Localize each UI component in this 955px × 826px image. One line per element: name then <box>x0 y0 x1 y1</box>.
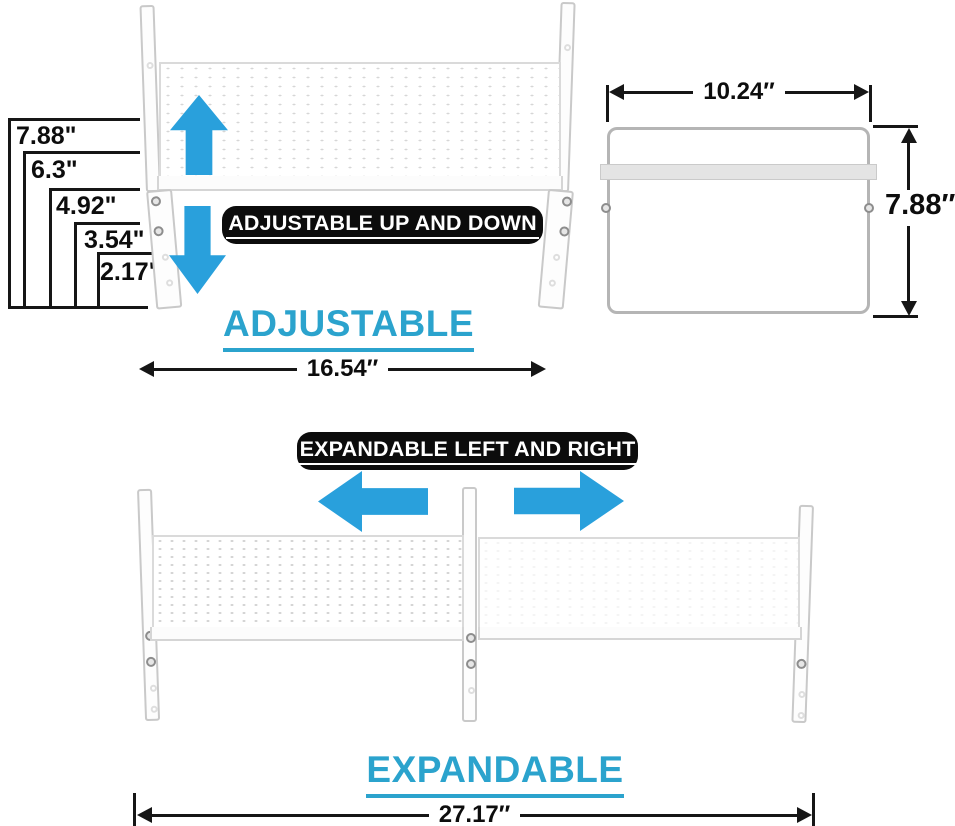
screw-icon <box>601 203 611 213</box>
screw-icon <box>153 226 164 237</box>
width-dimension-label: 16.54″ <box>297 355 389 383</box>
hole-dot <box>468 687 475 694</box>
hole-dot <box>151 706 158 713</box>
hole-dot <box>150 685 157 692</box>
hole-dot <box>162 253 170 261</box>
expandable-heading: EXPANDABLE <box>350 749 640 798</box>
dimension-arrowhead-left <box>137 807 152 823</box>
expand-post-center <box>462 487 477 722</box>
height-label-3: 4.92" <box>56 192 117 221</box>
measure-line <box>8 118 140 121</box>
shelf-top-panel <box>159 62 561 176</box>
expand-panel-left <box>152 535 464 627</box>
measure-line <box>49 188 140 191</box>
dimension-line <box>907 226 910 304</box>
measure-line <box>49 189 52 308</box>
dimension-line <box>907 141 910 190</box>
height-label-2: 6.3" <box>31 156 78 185</box>
dimension-line <box>624 91 693 94</box>
side-height-label: 7.88″ <box>885 189 955 222</box>
screw-icon <box>796 659 806 669</box>
expand-front-edge-right <box>478 627 802 640</box>
left-arrow-icon <box>318 471 428 532</box>
product-dimension-infographic: 7.88" 6.3" 4.92" 3.54" 2.17" ADJU <box>0 0 955 826</box>
screw-icon <box>466 633 476 643</box>
measure-line <box>8 306 148 309</box>
dimension-arrowhead-down <box>901 301 917 316</box>
screw-icon <box>151 196 162 207</box>
dimension-line <box>154 368 297 371</box>
width-dimension-16-54: 16.54″ <box>139 356 546 382</box>
dimension-arrowhead-left <box>609 84 624 100</box>
shelf-leg-left <box>146 189 182 310</box>
dimension-arrowhead-right <box>854 84 869 100</box>
dimension-line <box>152 814 429 817</box>
depth-dimension-10-24: 10.24″ <box>609 79 869 105</box>
shelf-leg-right <box>538 189 574 310</box>
expand-front-edge-left <box>150 627 464 641</box>
measure-line <box>23 152 26 308</box>
dimension-tick <box>133 793 136 826</box>
hole-dot <box>166 279 174 287</box>
dimension-tick <box>812 793 815 826</box>
expandable-callout-pill: EXPANDABLE LEFT AND RIGHT <box>297 432 638 470</box>
dimension-arrowhead-left <box>139 361 154 377</box>
height-label-4: 3.54" <box>84 226 145 255</box>
hole-dot <box>553 254 561 262</box>
screw-icon <box>559 226 570 237</box>
measure-line <box>8 119 11 308</box>
screw-icon <box>146 657 156 667</box>
shelf-front-edge <box>157 176 563 191</box>
dimension-line <box>785 91 854 94</box>
side-view-shelf-bar <box>600 164 877 180</box>
adjustable-callout-label: ADJUSTABLE UP AND DOWN <box>226 211 539 239</box>
hole-dot <box>549 279 557 287</box>
expand-panel-right <box>478 537 800 627</box>
screw-icon <box>864 203 874 213</box>
width-dimension-27-17: 27.17″ <box>137 802 812 826</box>
measure-line <box>74 223 77 308</box>
dimension-line <box>388 368 531 371</box>
depth-dimension-label: 10.24″ <box>693 78 785 106</box>
dimension-arrowhead-right <box>797 807 812 823</box>
screw-icon <box>466 659 476 669</box>
hole-dot <box>146 62 153 69</box>
hole-dot <box>798 712 805 719</box>
height-label-1: 7.88" <box>16 122 77 151</box>
screw-icon <box>562 196 573 207</box>
expanded-width-label: 27.17″ <box>429 801 521 826</box>
right-arrow-icon <box>514 471 624 531</box>
hole-dot <box>798 691 805 698</box>
measure-line <box>23 151 140 154</box>
measure-line <box>74 222 140 225</box>
dimension-tick <box>869 85 872 122</box>
side-view-frame <box>607 127 870 314</box>
dimension-line <box>520 814 797 817</box>
shelf-back-post-left <box>139 5 161 192</box>
expandable-callout-label: EXPANDABLE LEFT AND RIGHT <box>298 437 638 465</box>
adjustable-callout-pill: ADJUSTABLE UP AND DOWN <box>222 206 543 244</box>
dimension-arrowhead-right <box>531 361 546 377</box>
adjustable-heading: ADJUSTABLE <box>223 303 463 352</box>
hole-dot <box>564 44 571 51</box>
